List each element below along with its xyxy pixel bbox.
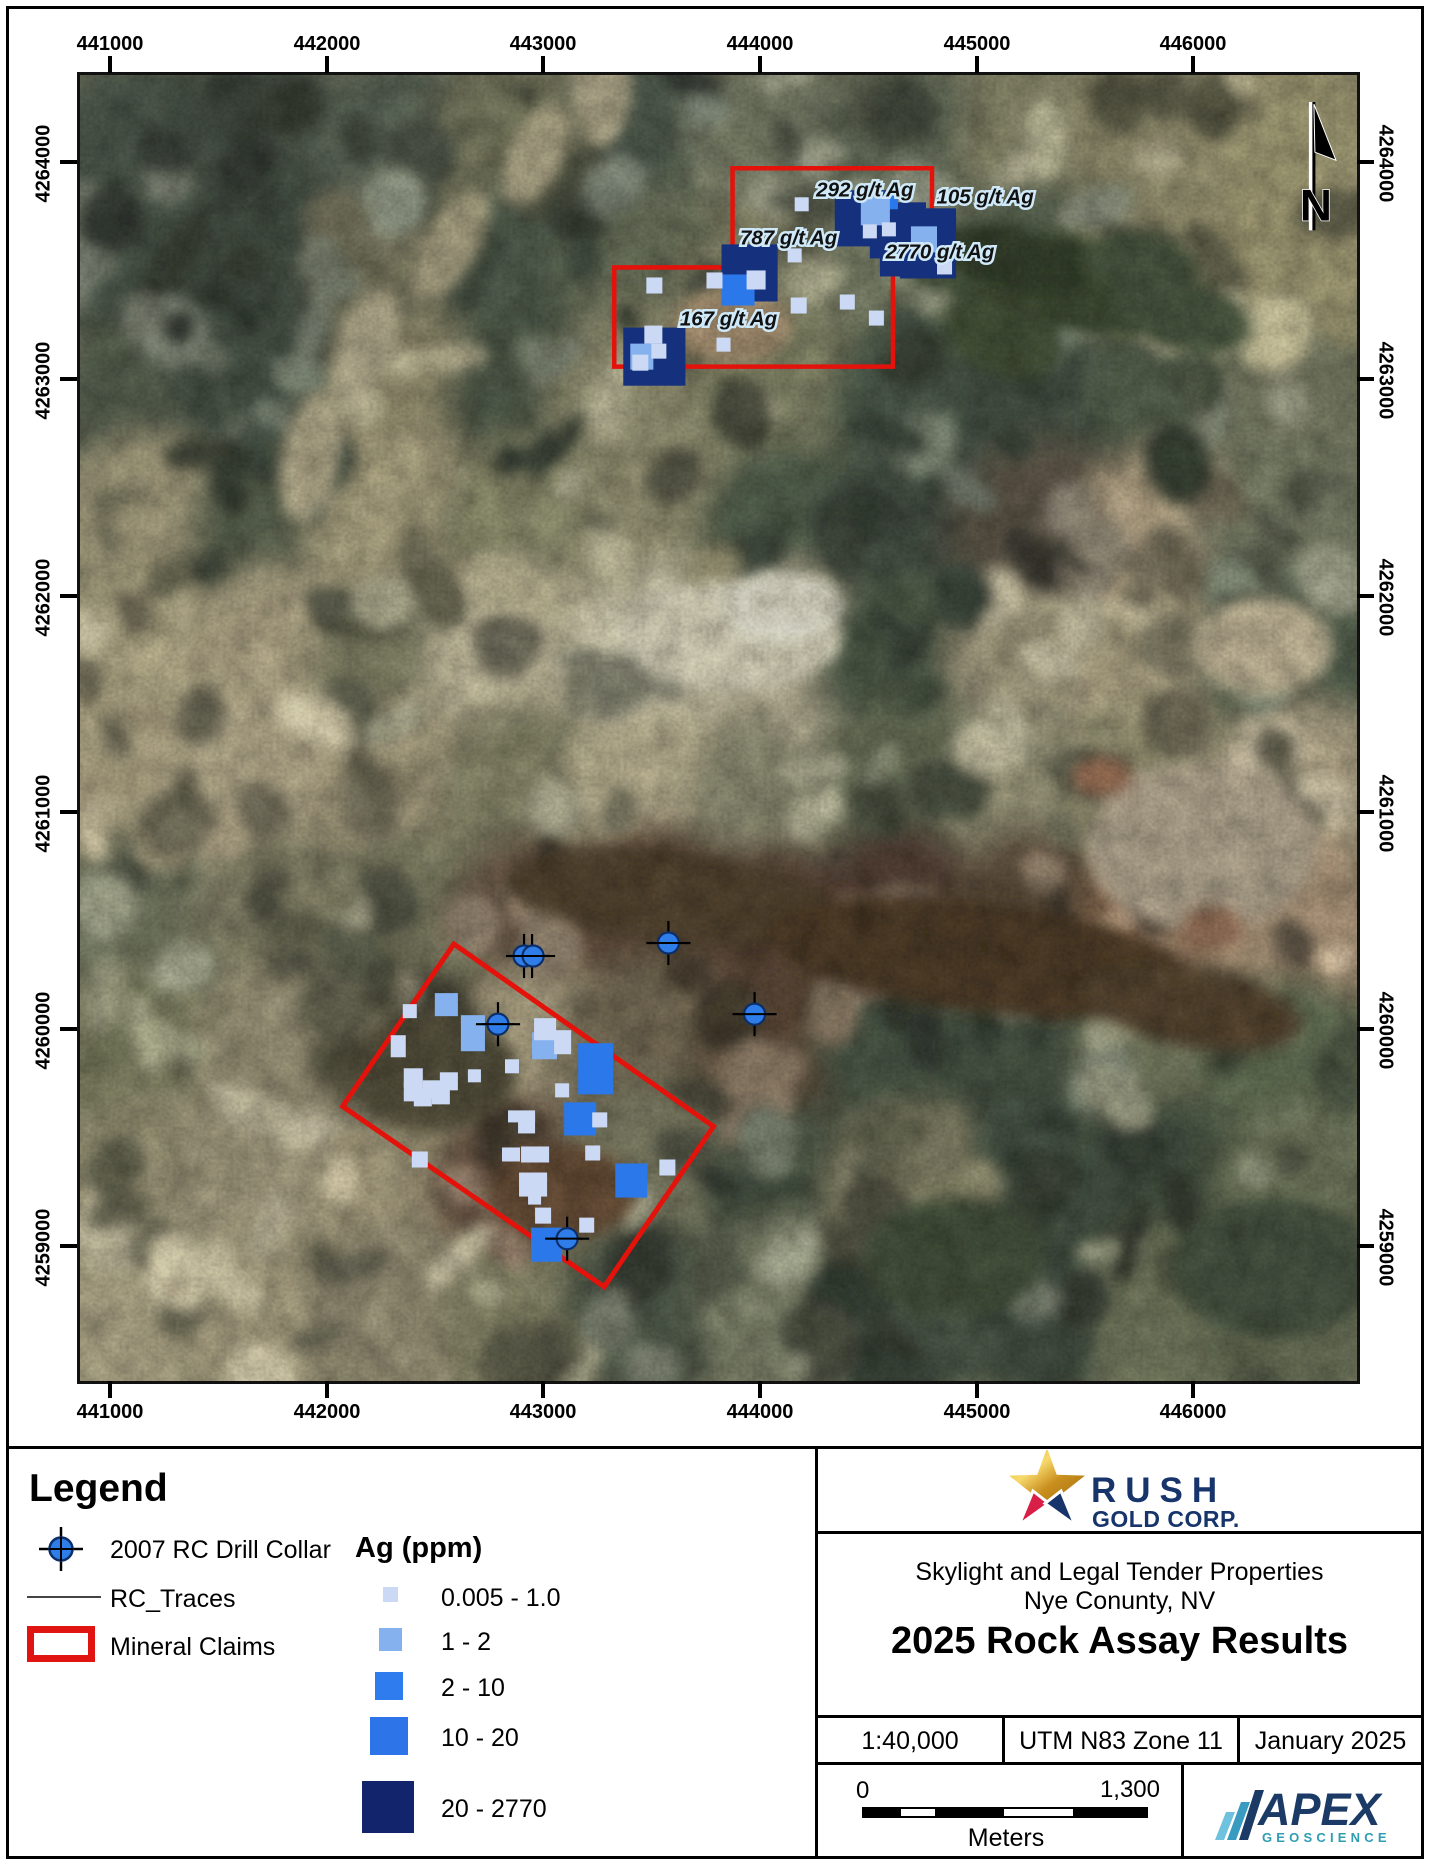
svg-text:2770 g/t Ag: 2770 g/t Ag [885, 240, 995, 263]
svg-text:GOLD CORP.: GOLD CORP. [1092, 1506, 1240, 1532]
svg-text:APEX: APEX [1257, 1784, 1384, 1835]
svg-text:167 g/t Ag: 167 g/t Ag [680, 308, 778, 331]
svg-text:105 g/t Ag: 105 g/t Ag [936, 185, 1034, 208]
svg-text:GEOSCIENCE: GEOSCIENCE [1262, 1830, 1391, 1845]
svg-text:RUSH: RUSH [1091, 1471, 1226, 1510]
svg-text:787 g/t Ag: 787 g/t Ag [740, 226, 838, 249]
svg-text:N: N [1300, 181, 1332, 230]
svg-text:292 g/t Ag: 292 g/t Ag [815, 178, 914, 201]
